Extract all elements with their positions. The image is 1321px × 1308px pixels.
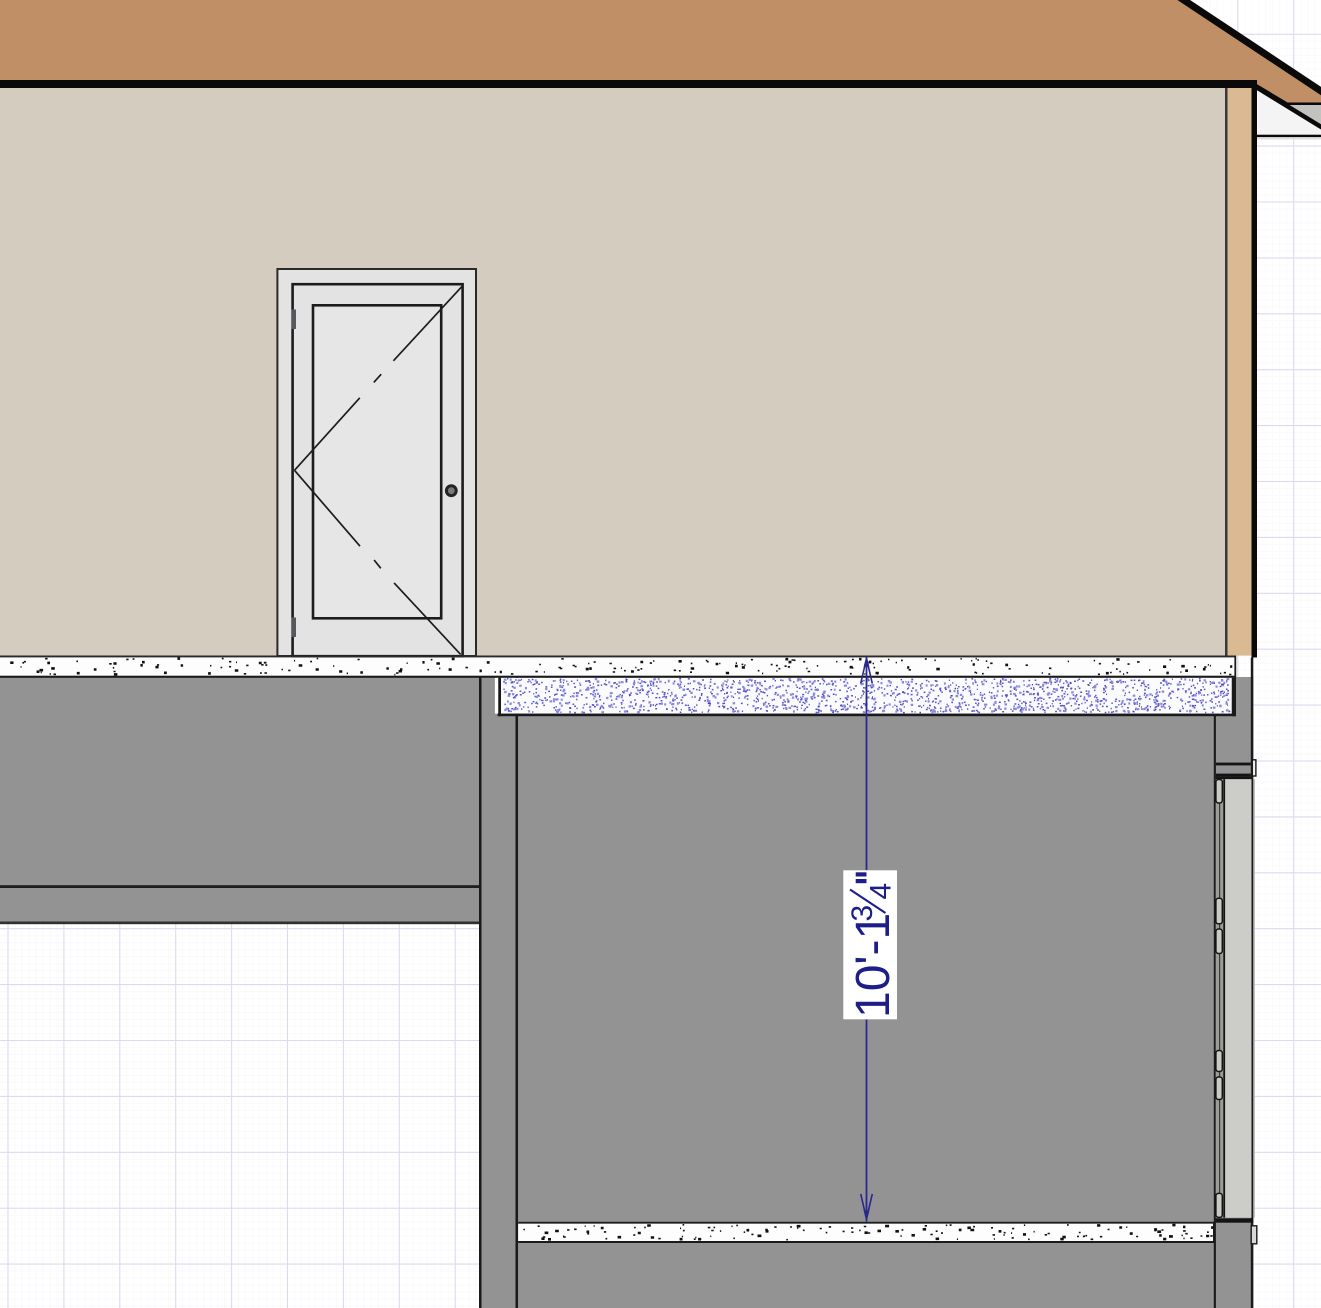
svg-text:4: 4 xyxy=(865,883,898,900)
svg-text:10'-1: 10'-1 xyxy=(847,913,900,1018)
svg-text:3: 3 xyxy=(846,905,879,922)
